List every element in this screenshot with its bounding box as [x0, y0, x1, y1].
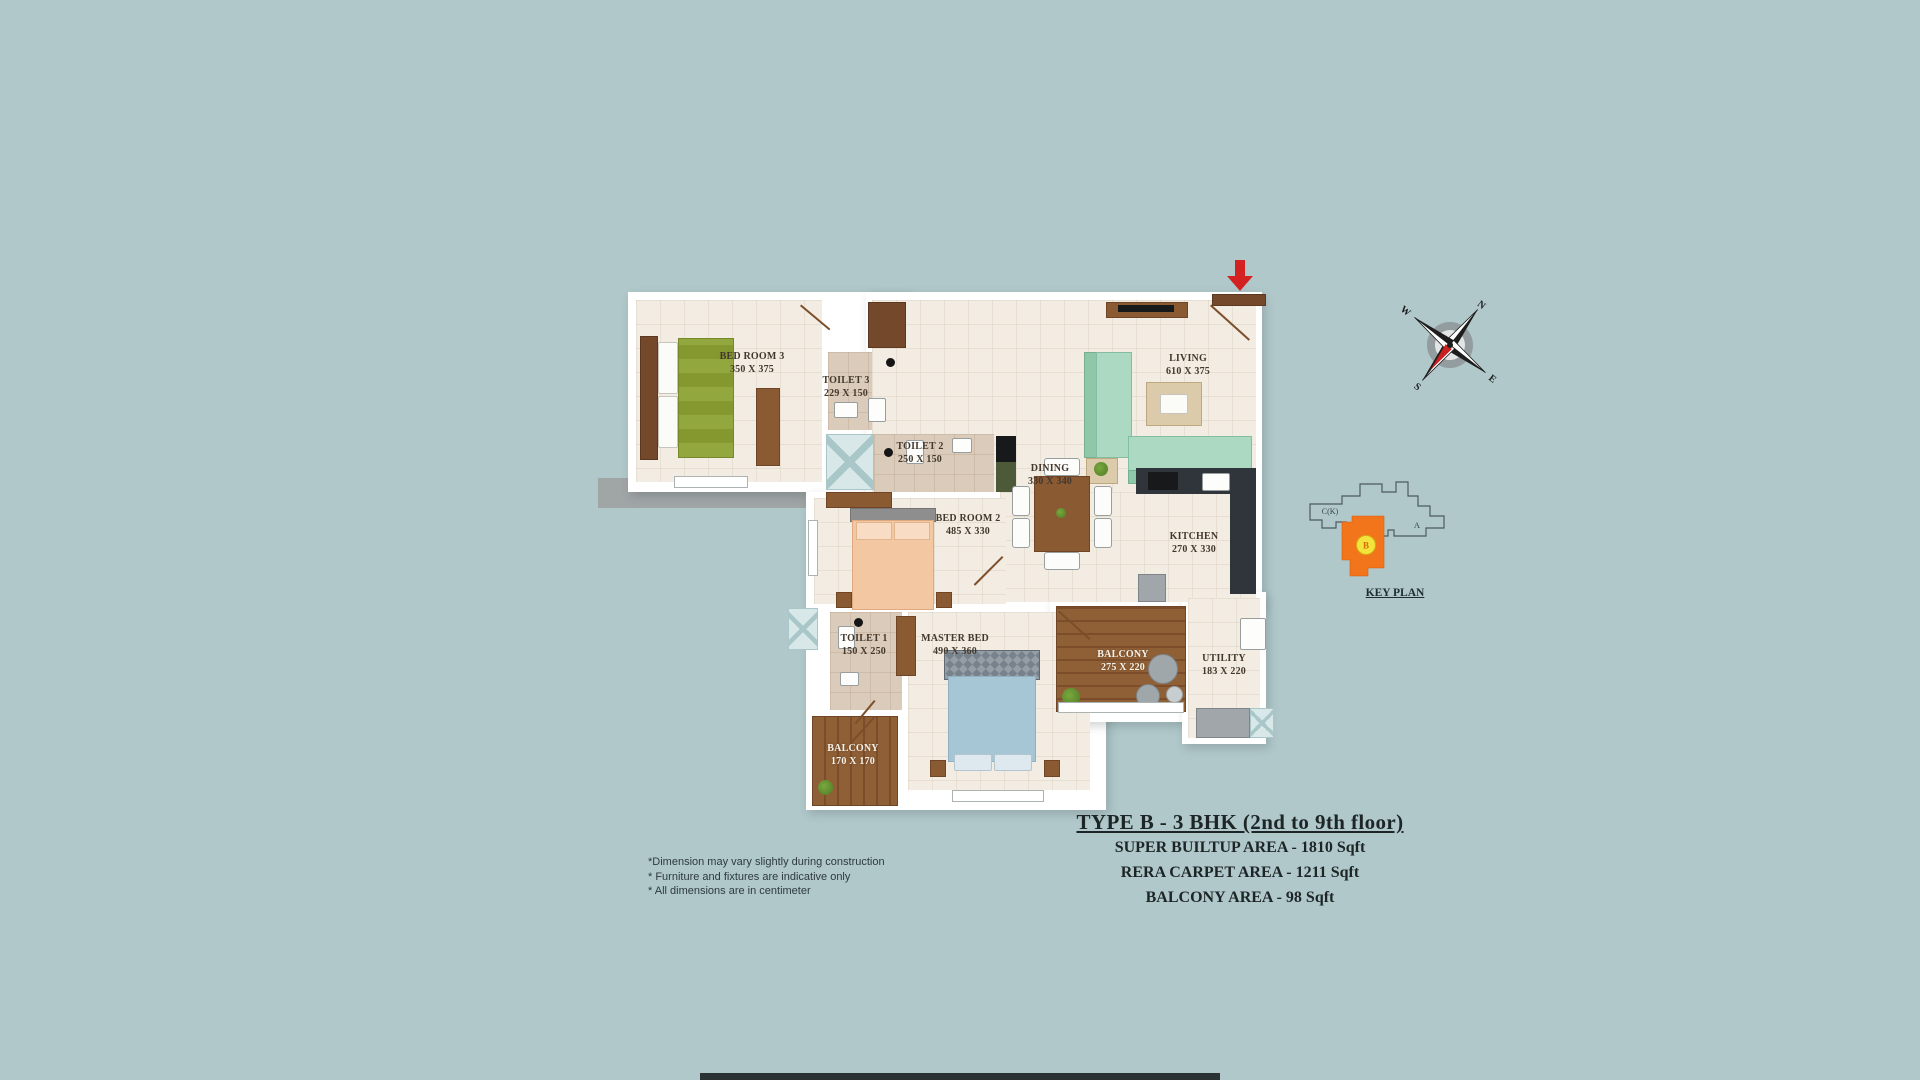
bed3-pillow	[658, 396, 678, 448]
room-name: TOILET 3	[808, 374, 884, 387]
plan-title: TYPE B - 3 BHK (2nd to 9th floor)	[1040, 810, 1440, 835]
master-side-table	[1044, 760, 1060, 777]
room-label-toilet2: TOILET 2 250 X 150	[882, 440, 958, 466]
sofa-seats-vertical	[1096, 352, 1132, 458]
bed2-pillow	[856, 522, 892, 540]
room-dims: 275 X 220	[1072, 661, 1174, 674]
area-line-carpet: RERA CARPET AREA - 1211 Sqft	[1040, 860, 1440, 885]
utility-sink-box	[1240, 618, 1266, 650]
key-plan: B C(K) A	[1296, 470, 1456, 590]
disclaimer-line: * All dimensions are in centimeter	[648, 884, 885, 899]
title-block: TYPE B - 3 BHK (2nd to 9th floor) SUPER …	[1040, 810, 1440, 910]
room-dims: 170 X 170	[811, 755, 895, 768]
room-dims: 229 X 150	[808, 387, 884, 400]
room-label-toilet3: TOILET 3 229 X 150	[808, 374, 884, 400]
room-dims: 490 X 360	[902, 645, 1008, 658]
dining-centerpiece	[1056, 508, 1066, 518]
compass-w-label: W	[1398, 304, 1413, 319]
toilet3-wc	[868, 398, 886, 422]
room-label-living: LIVING 610 X 375	[1136, 352, 1240, 378]
kitchen-fridge	[1138, 574, 1166, 602]
bed2-side-table	[836, 592, 852, 608]
room-name: KITCHEN	[1142, 530, 1246, 543]
dining-chair	[1044, 552, 1080, 570]
bed3-wardrobe	[756, 388, 780, 466]
bed3-window	[674, 476, 748, 488]
master-bed-blanket	[948, 676, 1036, 762]
room-label-bedroom3: BED ROOM 3 350 X 375	[696, 350, 808, 376]
area-line-builtup: SUPER BUILTUP AREA - 1810 Sqft	[1040, 835, 1440, 860]
disclaimer-line: *Dimension may vary slightly during cons…	[648, 855, 885, 870]
room-label-masterbed: MASTER BED 490 X 360	[902, 632, 1008, 658]
foyer-lift-hatch	[826, 434, 874, 490]
room-name: DINING	[1000, 462, 1100, 475]
kitchen-stove	[1148, 472, 1178, 490]
bed2-wardrobe	[826, 492, 892, 508]
toilet3-drain	[886, 358, 895, 367]
kitchen-sink	[1202, 473, 1230, 491]
dining-chair	[1094, 486, 1112, 516]
room-name: BALCONY	[1072, 648, 1174, 661]
disclaimer-notes: *Dimension may vary slightly during cons…	[648, 855, 885, 899]
master-side-table	[930, 760, 946, 777]
area-line-balcony: BALCONY AREA - 98 Sqft	[1040, 885, 1440, 910]
compass-icon: N E S W	[1398, 293, 1502, 397]
entrance-arrow-icon	[1227, 276, 1253, 291]
compass-e-label: E	[1486, 373, 1498, 386]
dining-chair	[1094, 518, 1112, 548]
room-dims: 270 X 330	[1142, 543, 1246, 556]
floor-plan-poster: BED ROOM 3 350 X 375 TOILET 3 229 X 150 …	[0, 0, 1920, 1080]
room-name: BED ROOM 2	[916, 512, 1020, 525]
room-dims: 183 X 220	[1186, 665, 1262, 678]
room-name: TOILET 1	[822, 632, 906, 645]
room-label-toilet1: TOILET 1 150 X 250	[822, 632, 906, 658]
key-plan-unit-c-label: C(K)	[1322, 507, 1339, 516]
tv	[1118, 305, 1174, 312]
room-label-balcony-bottom: BALCONY 170 X 170	[811, 742, 895, 768]
foyer-cupboard	[868, 302, 906, 348]
room-name: UTILITY	[1186, 652, 1262, 665]
room-label-kitchen: KITCHEN 270 X 330	[1142, 530, 1246, 556]
compass-s-label: S	[1411, 381, 1423, 393]
disclaimer-line: * Furniture and fixtures are indicative …	[648, 870, 885, 885]
room-dims: 250 X 150	[882, 453, 958, 466]
room-label-utility: UTILITY 183 X 220	[1186, 652, 1262, 678]
room-dims: 350 X 375	[696, 363, 808, 376]
master-bed-pillow	[994, 754, 1032, 771]
footer-strip	[700, 1073, 1220, 1080]
entrance-arrow-stem	[1235, 260, 1245, 276]
balcony-right-railing	[1058, 702, 1184, 713]
balcony-table	[1166, 686, 1183, 703]
room-label-balcony-right: BALCONY 275 X 220	[1072, 648, 1174, 674]
room-name: MASTER BED	[902, 632, 1008, 645]
master-bed-pillow	[954, 754, 992, 771]
utility-washer	[1196, 708, 1250, 738]
room-dims: 610 X 375	[1136, 365, 1240, 378]
room-dims: 330 X 340	[1000, 475, 1100, 488]
room-label-bedroom2: BED ROOM 2 485 X 330	[916, 512, 1020, 538]
main-door-leaf	[1212, 294, 1266, 306]
master-window	[952, 790, 1044, 802]
utility-shaft-hatch	[1250, 708, 1274, 738]
toilet3-sink	[834, 402, 858, 418]
key-plan-unit-b-label: B	[1363, 541, 1369, 551]
shaft-appliance	[996, 436, 1016, 462]
room-name: TOILET 2	[882, 440, 958, 453]
bed3-headboard	[640, 336, 658, 460]
key-plan-unit-a-label: A	[1414, 520, 1421, 530]
sofa-seats-horizontal	[1128, 436, 1252, 472]
lift-shaft-hatch	[788, 608, 818, 650]
bed3-pillow	[658, 342, 678, 394]
room-name: LIVING	[1136, 352, 1240, 365]
room-label-dining: DINING 330 X 340	[1000, 462, 1100, 488]
room-name: BALCONY	[811, 742, 895, 755]
balcony-bottom-plant	[818, 780, 833, 795]
room-dims: 485 X 330	[916, 525, 1020, 538]
bed2-side-table	[936, 592, 952, 608]
room-name: BED ROOM 3	[696, 350, 808, 363]
coffee-table-tray	[1160, 394, 1188, 414]
toilet1-drain	[854, 618, 863, 627]
bed2-window	[808, 520, 818, 576]
toilet1-sink	[840, 672, 859, 686]
room-dims: 150 X 250	[822, 645, 906, 658]
